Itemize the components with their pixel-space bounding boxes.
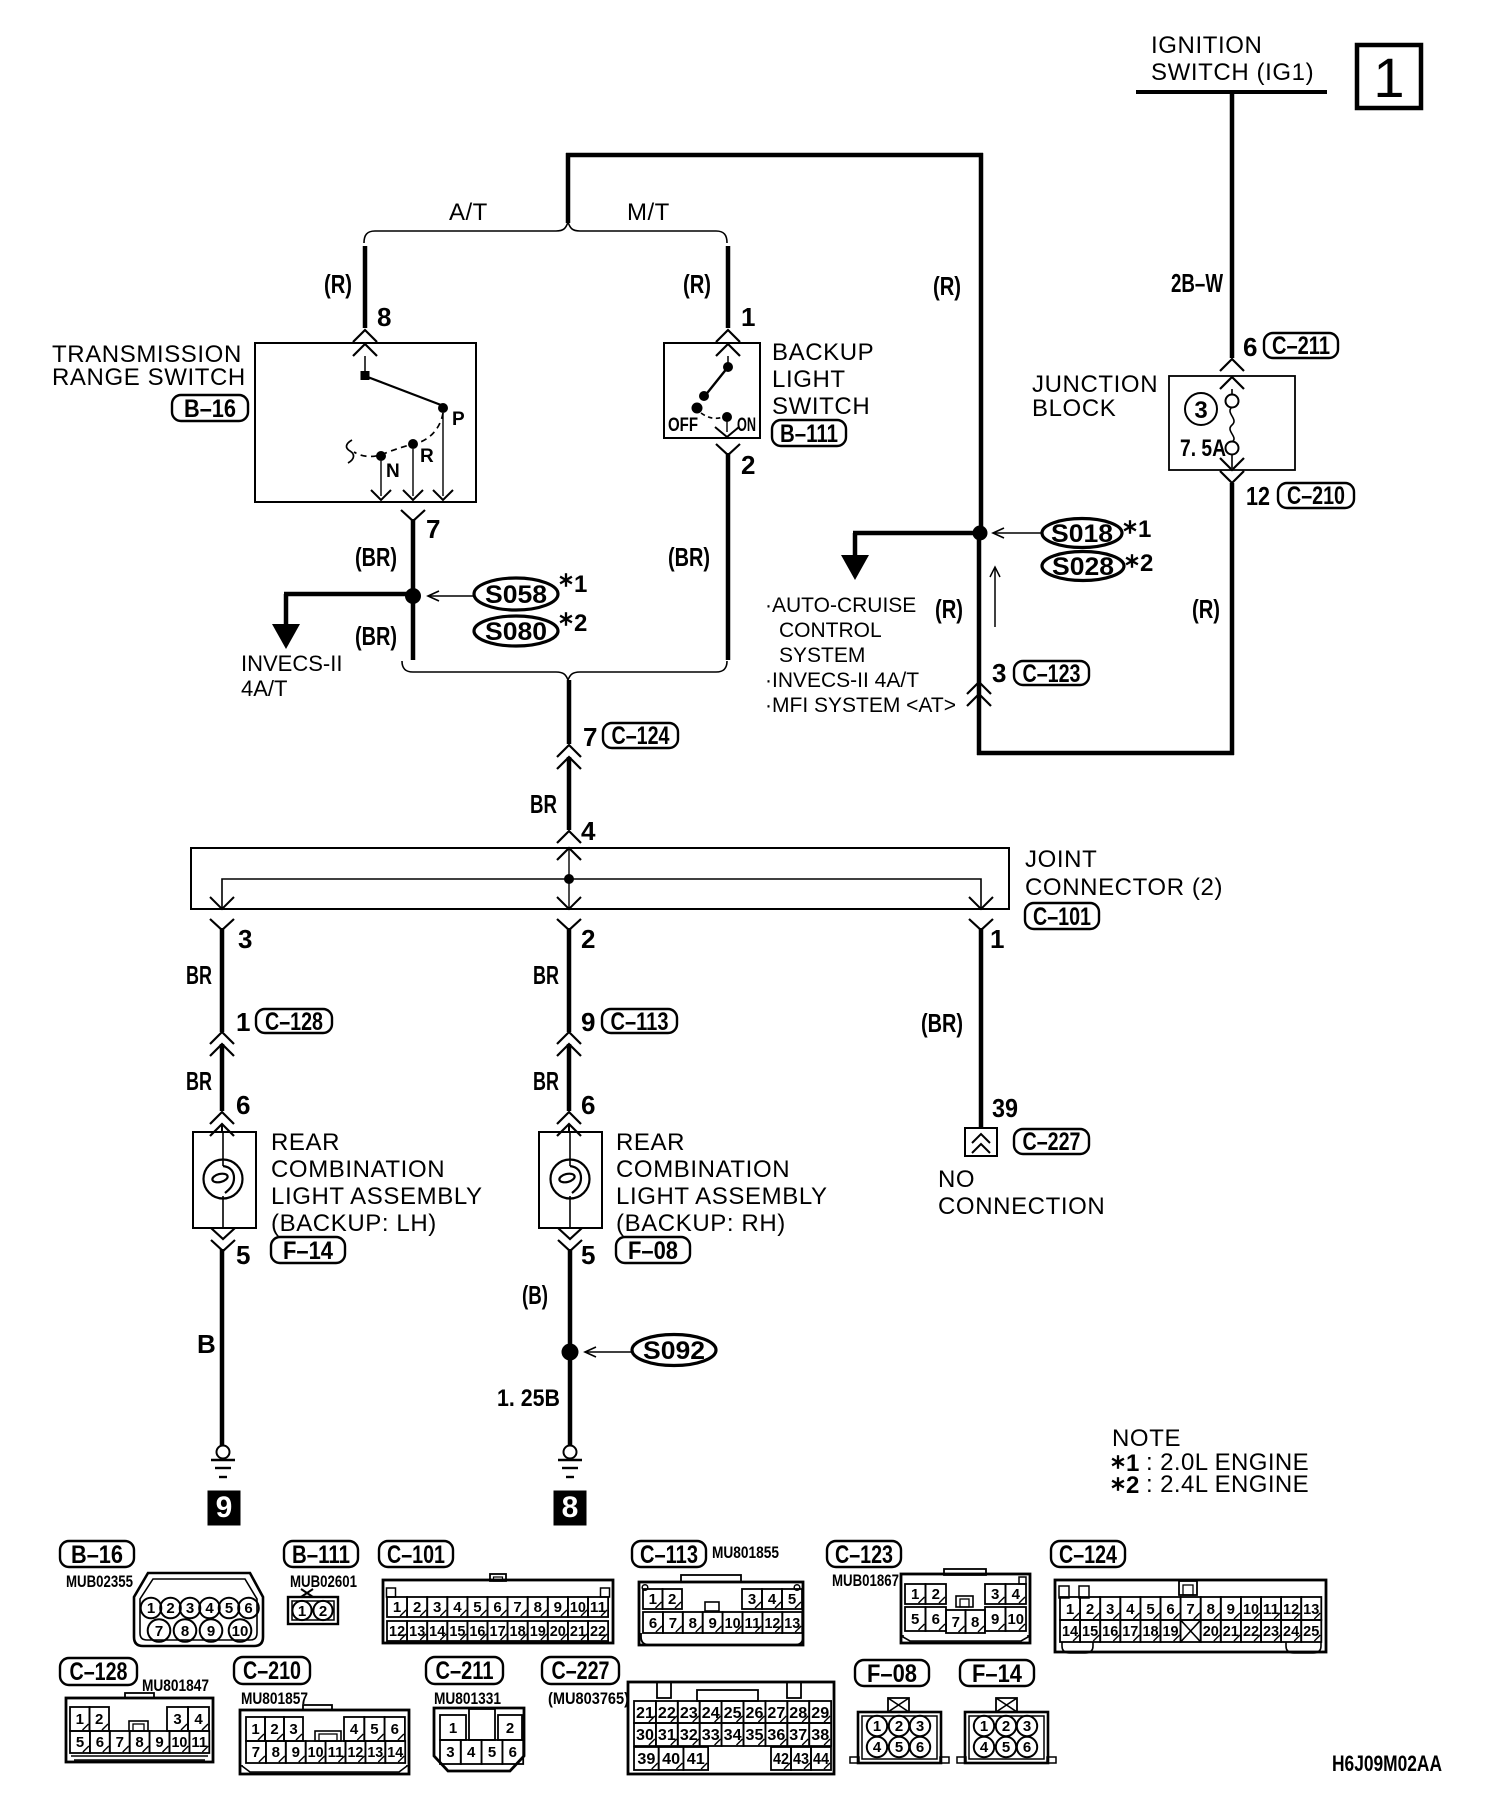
svg-text:(MU803765): (MU803765)	[548, 1689, 629, 1708]
svg-text:4: 4	[194, 1711, 203, 1728]
svg-text:MU801331: MU801331	[434, 1689, 501, 1708]
svg-text:3: 3	[433, 1599, 441, 1616]
svg-text:7. 5A: 7. 5A	[1180, 435, 1226, 462]
svg-text:(R): (R)	[1192, 594, 1220, 624]
svg-text:C–101: C–101	[1033, 903, 1091, 931]
svg-text:2: 2	[581, 924, 595, 954]
svg-text:8: 8	[272, 1744, 280, 1761]
svg-text:IGNITION: IGNITION	[1151, 32, 1262, 59]
svg-text:3: 3	[289, 1721, 297, 1738]
svg-text:1: 1	[574, 571, 587, 598]
svg-text:C–210: C–210	[243, 1657, 301, 1685]
svg-text:37: 37	[789, 1727, 807, 1744]
svg-text:3: 3	[992, 658, 1006, 688]
svg-text:M/T: M/T	[627, 199, 670, 226]
svg-text:3: 3	[173, 1711, 181, 1728]
svg-text:5: 5	[581, 1240, 595, 1270]
svg-text:6: 6	[1023, 1739, 1031, 1756]
svg-text:B–111: B–111	[780, 420, 838, 448]
svg-text:BLOCK: BLOCK	[1032, 395, 1116, 422]
svg-text:9: 9	[581, 1007, 595, 1037]
svg-text:C–124: C–124	[612, 722, 670, 750]
svg-text:31: 31	[658, 1727, 676, 1744]
svg-text:4: 4	[768, 1591, 777, 1608]
svg-text:B–16: B–16	[71, 1541, 123, 1569]
svg-text:4: 4	[467, 1744, 476, 1761]
svg-text:7: 7	[116, 1734, 124, 1751]
svg-text:6: 6	[96, 1734, 104, 1751]
svg-text:1: 1	[76, 1711, 84, 1728]
svg-text:34: 34	[724, 1727, 742, 1744]
svg-text:H6J09M02AA: H6J09M02AA	[1332, 1751, 1442, 1776]
svg-text:19: 19	[1162, 1623, 1178, 1640]
svg-text:3: 3	[1023, 1718, 1031, 1735]
svg-text:8: 8	[181, 1623, 189, 1640]
svg-text:9: 9	[292, 1744, 300, 1761]
svg-text:6: 6	[493, 1599, 501, 1616]
svg-text:39: 39	[637, 1751, 655, 1768]
svg-text:9: 9	[207, 1623, 215, 1640]
svg-text:C–128: C–128	[265, 1008, 323, 1036]
svg-text:1: 1	[251, 1721, 259, 1738]
svg-text:C–123: C–123	[1023, 660, 1081, 688]
svg-text:REAR: REAR	[271, 1129, 340, 1156]
svg-text:6: 6	[391, 1721, 399, 1738]
svg-text:3: 3	[748, 1591, 756, 1608]
svg-text:1: 1	[873, 1718, 881, 1735]
svg-text:CONTROL: CONTROL	[779, 619, 882, 642]
svg-text:8: 8	[971, 1614, 979, 1631]
svg-text:5: 5	[236, 1240, 250, 1270]
svg-text:4: 4	[980, 1739, 989, 1756]
svg-text:5: 5	[895, 1739, 903, 1756]
svg-text:9: 9	[1227, 1601, 1235, 1618]
svg-text:F–14: F–14	[972, 1660, 1022, 1688]
svg-text:4: 4	[453, 1599, 462, 1616]
svg-text:ON: ON	[737, 415, 756, 436]
svg-text:11: 11	[1263, 1601, 1279, 1618]
svg-text:9: 9	[709, 1615, 717, 1632]
svg-text:5: 5	[911, 1611, 919, 1628]
svg-text:36: 36	[767, 1727, 785, 1744]
svg-text:5: 5	[488, 1744, 496, 1761]
svg-text:CONNECTOR (2): CONNECTOR (2)	[1025, 874, 1223, 901]
svg-text:8: 8	[689, 1615, 697, 1632]
svg-text:C–210: C–210	[1287, 482, 1345, 510]
svg-text:32: 32	[680, 1727, 698, 1744]
svg-text:A/T: A/T	[449, 199, 488, 226]
svg-text:2: 2	[1086, 1601, 1094, 1618]
svg-text:C–124: C–124	[1059, 1541, 1117, 1569]
svg-text:6: 6	[916, 1739, 924, 1756]
svg-text:1: 1	[911, 1586, 919, 1603]
svg-text:4: 4	[1126, 1601, 1135, 1618]
svg-text:9: 9	[554, 1599, 562, 1616]
svg-text:SYSTEM: SYSTEM	[779, 644, 865, 667]
svg-text:REAR: REAR	[616, 1129, 685, 1156]
svg-text:41: 41	[687, 1751, 705, 1768]
svg-text:2: 2	[1002, 1718, 1010, 1735]
svg-text:SWITCH: SWITCH	[772, 393, 870, 420]
svg-text:2: 2	[741, 450, 755, 480]
svg-text:5: 5	[370, 1721, 378, 1738]
svg-text:2: 2	[932, 1586, 940, 1603]
svg-text:33: 33	[702, 1727, 720, 1744]
svg-text:1: 1	[393, 1599, 401, 1616]
svg-text:C–211: C–211	[436, 1657, 494, 1685]
svg-text:4: 4	[205, 1600, 214, 1617]
svg-text:(R): (R)	[683, 269, 711, 299]
svg-text:7: 7	[583, 722, 597, 752]
svg-text:40: 40	[662, 1751, 680, 1768]
svg-text:15: 15	[1082, 1623, 1098, 1640]
svg-text:(BACKUP: RH): (BACKUP: RH)	[616, 1210, 786, 1237]
svg-text:C–227: C–227	[1023, 1128, 1081, 1156]
svg-text:8: 8	[377, 302, 391, 332]
svg-text:S018: S018	[1051, 520, 1113, 548]
svg-text:3: 3	[186, 1600, 194, 1617]
svg-text:S080: S080	[485, 618, 547, 646]
svg-text:NOTE: NOTE	[1112, 1425, 1181, 1452]
svg-text:BR: BR	[533, 960, 559, 990]
svg-text:NO: NO	[938, 1166, 975, 1193]
svg-text:BR: BR	[186, 960, 212, 990]
svg-text:4: 4	[350, 1721, 359, 1738]
svg-text:4: 4	[873, 1739, 882, 1756]
svg-text:21: 21	[1223, 1623, 1239, 1640]
svg-text:25: 25	[1303, 1623, 1319, 1640]
svg-text:5: 5	[473, 1599, 481, 1616]
svg-text:7: 7	[426, 514, 440, 544]
svg-text:3: 3	[916, 1718, 924, 1735]
svg-text:2: 2	[319, 1603, 327, 1620]
svg-text:9: 9	[991, 1611, 999, 1628]
svg-text:3: 3	[1194, 397, 1207, 424]
svg-text:23: 23	[1263, 1623, 1279, 1640]
svg-text:3: 3	[1106, 1601, 1114, 1618]
svg-text:C–128: C–128	[70, 1658, 128, 1686]
svg-text:1: 1	[980, 1718, 988, 1735]
svg-text:6: 6	[509, 1744, 517, 1761]
svg-text:(BACKUP: LH): (BACKUP: LH)	[271, 1210, 437, 1237]
svg-text:38: 38	[811, 1727, 829, 1744]
svg-text:B–16: B–16	[184, 395, 236, 423]
svg-text:1: 1	[298, 1603, 306, 1620]
svg-text:35: 35	[746, 1727, 764, 1744]
svg-text:1: 1	[1373, 46, 1404, 109]
svg-text:B–111: B–111	[292, 1541, 350, 1569]
svg-text:·INVECS-II 4A/T: ·INVECS-II 4A/T	[765, 669, 919, 692]
svg-text:BR: BR	[186, 1066, 212, 1096]
svg-text:6: 6	[932, 1611, 940, 1628]
svg-text:1: 1	[449, 1720, 457, 1737]
svg-text:7: 7	[155, 1623, 163, 1640]
svg-text:17: 17	[1122, 1623, 1138, 1640]
svg-text:C–123: C–123	[835, 1541, 893, 1569]
svg-text:5: 5	[225, 1600, 233, 1617]
svg-text:2: 2	[166, 1600, 174, 1617]
svg-text:3: 3	[238, 924, 252, 954]
svg-text:N: N	[386, 461, 400, 482]
svg-text:6: 6	[1166, 1601, 1174, 1618]
svg-text:7: 7	[252, 1744, 260, 1761]
svg-text:JUNCTION: JUNCTION	[1032, 371, 1158, 398]
svg-text:6: 6	[649, 1615, 657, 1632]
svg-text:1: 1	[741, 302, 755, 332]
svg-text:BACKUP: BACKUP	[772, 339, 874, 366]
svg-text:C–211: C–211	[1272, 332, 1330, 360]
svg-text:30: 30	[636, 1727, 654, 1744]
svg-text:RANGE SWITCH: RANGE SWITCH	[52, 364, 246, 391]
svg-text:(BR): (BR)	[355, 621, 397, 651]
svg-text:16: 16	[1102, 1623, 1118, 1640]
svg-text:(BR): (BR)	[921, 1008, 963, 1038]
svg-text:BR: BR	[533, 1066, 559, 1096]
svg-text:10: 10	[1008, 1611, 1025, 1628]
svg-text:B: B	[197, 1329, 216, 1359]
svg-text:2: 2	[668, 1591, 676, 1608]
svg-text:MUB02601: MUB02601	[290, 1572, 357, 1591]
svg-text:F–08: F–08	[628, 1237, 678, 1265]
svg-text:8: 8	[135, 1734, 143, 1751]
svg-text:S028: S028	[1052, 553, 1114, 581]
svg-text:12: 12	[1283, 1601, 1299, 1618]
svg-text:(B): (B)	[522, 1280, 548, 1310]
svg-text:7: 7	[669, 1615, 677, 1632]
svg-text:(BR): (BR)	[355, 542, 397, 572]
svg-text:CONNECTION: CONNECTION	[938, 1193, 1105, 1220]
svg-text:MU801855: MU801855	[712, 1543, 779, 1562]
svg-text:S058: S058	[485, 581, 547, 609]
svg-text:2B–W: 2B–W	[1171, 268, 1223, 298]
svg-text:6: 6	[236, 1090, 250, 1120]
svg-text:S092: S092	[643, 1337, 705, 1365]
svg-text:COMBINATION: COMBINATION	[271, 1156, 445, 1183]
svg-text:8: 8	[534, 1599, 542, 1616]
svg-text:(R): (R)	[935, 594, 963, 624]
svg-text:BR: BR	[530, 789, 557, 819]
svg-text:1. 25B: 1. 25B	[497, 1385, 560, 1412]
svg-text:F–14: F–14	[283, 1237, 333, 1265]
svg-text:: 2.4L ENGINE: : 2.4L ENGINE	[1146, 1471, 1309, 1498]
svg-text:4: 4	[1012, 1586, 1021, 1603]
svg-text:C–101: C–101	[387, 1541, 445, 1569]
svg-text:2: 2	[270, 1721, 278, 1738]
svg-text:LIGHT ASSEMBLY: LIGHT ASSEMBLY	[616, 1183, 828, 1210]
svg-text:R: R	[420, 446, 434, 467]
svg-text:2: 2	[1140, 550, 1153, 577]
svg-text:2: 2	[506, 1720, 514, 1737]
svg-text:MUB02355: MUB02355	[66, 1572, 133, 1591]
svg-text:(R): (R)	[933, 271, 961, 301]
svg-text:1: 1	[147, 1600, 155, 1617]
svg-text:2: 2	[1126, 1472, 1139, 1499]
svg-text:OFF: OFF	[668, 415, 698, 436]
svg-text:6: 6	[1243, 332, 1257, 362]
svg-text:2: 2	[574, 610, 587, 637]
svg-text:12: 12	[1246, 481, 1270, 511]
svg-text:5: 5	[1146, 1601, 1154, 1618]
svg-text:9: 9	[155, 1734, 163, 1751]
svg-text:1: 1	[236, 1007, 250, 1037]
svg-text:3: 3	[446, 1744, 454, 1761]
svg-text:·AUTO-CRUISE: ·AUTO-CRUISE	[765, 594, 916, 617]
svg-text:5: 5	[76, 1734, 84, 1751]
svg-text:MUB01867: MUB01867	[832, 1571, 899, 1590]
svg-text:9: 9	[216, 1491, 233, 1524]
svg-text:7: 7	[952, 1614, 960, 1631]
svg-text:8: 8	[562, 1491, 579, 1524]
svg-text:2: 2	[95, 1711, 103, 1728]
svg-text:5: 5	[788, 1591, 796, 1608]
svg-text:C–113: C–113	[640, 1541, 698, 1569]
svg-text:4A/T: 4A/T	[241, 676, 287, 701]
svg-text:C–113: C–113	[611, 1008, 669, 1036]
svg-text:7: 7	[1186, 1601, 1194, 1618]
svg-text:F–08: F–08	[867, 1660, 917, 1688]
svg-text:2: 2	[895, 1718, 903, 1735]
svg-text:8: 8	[1207, 1601, 1215, 1618]
svg-text:39: 39	[992, 1093, 1018, 1123]
svg-text:5: 5	[1002, 1739, 1010, 1756]
svg-text:MU801857: MU801857	[241, 1689, 308, 1708]
svg-text:P: P	[452, 409, 465, 430]
svg-text:(R): (R)	[324, 269, 352, 299]
svg-text:COMBINATION: COMBINATION	[616, 1156, 790, 1183]
svg-text:SWITCH (IG1): SWITCH (IG1)	[1151, 59, 1314, 86]
svg-text:C–227: C–227	[552, 1657, 610, 1685]
svg-text:1: 1	[990, 924, 1004, 954]
svg-text:6: 6	[581, 1090, 595, 1120]
svg-text:LIGHT ASSEMBLY: LIGHT ASSEMBLY	[271, 1183, 483, 1210]
svg-text:2: 2	[413, 1599, 421, 1616]
svg-text:JOINT: JOINT	[1025, 846, 1097, 873]
svg-text:INVECS-II: INVECS-II	[241, 651, 342, 676]
svg-text:LIGHT: LIGHT	[772, 366, 846, 393]
svg-text:7: 7	[513, 1599, 521, 1616]
svg-text:1: 1	[1138, 516, 1151, 543]
svg-text:4: 4	[581, 816, 596, 846]
svg-text:13: 13	[1303, 1601, 1319, 1618]
svg-text:1: 1	[1066, 1601, 1074, 1618]
svg-text:10: 10	[232, 1623, 249, 1640]
svg-text:6: 6	[244, 1600, 252, 1617]
svg-text:3: 3	[991, 1586, 999, 1603]
svg-text:(BR): (BR)	[668, 542, 710, 572]
svg-text:1: 1	[649, 1591, 657, 1608]
svg-text:·MFI SYSTEM <AT>: ·MFI SYSTEM <AT>	[765, 694, 956, 717]
